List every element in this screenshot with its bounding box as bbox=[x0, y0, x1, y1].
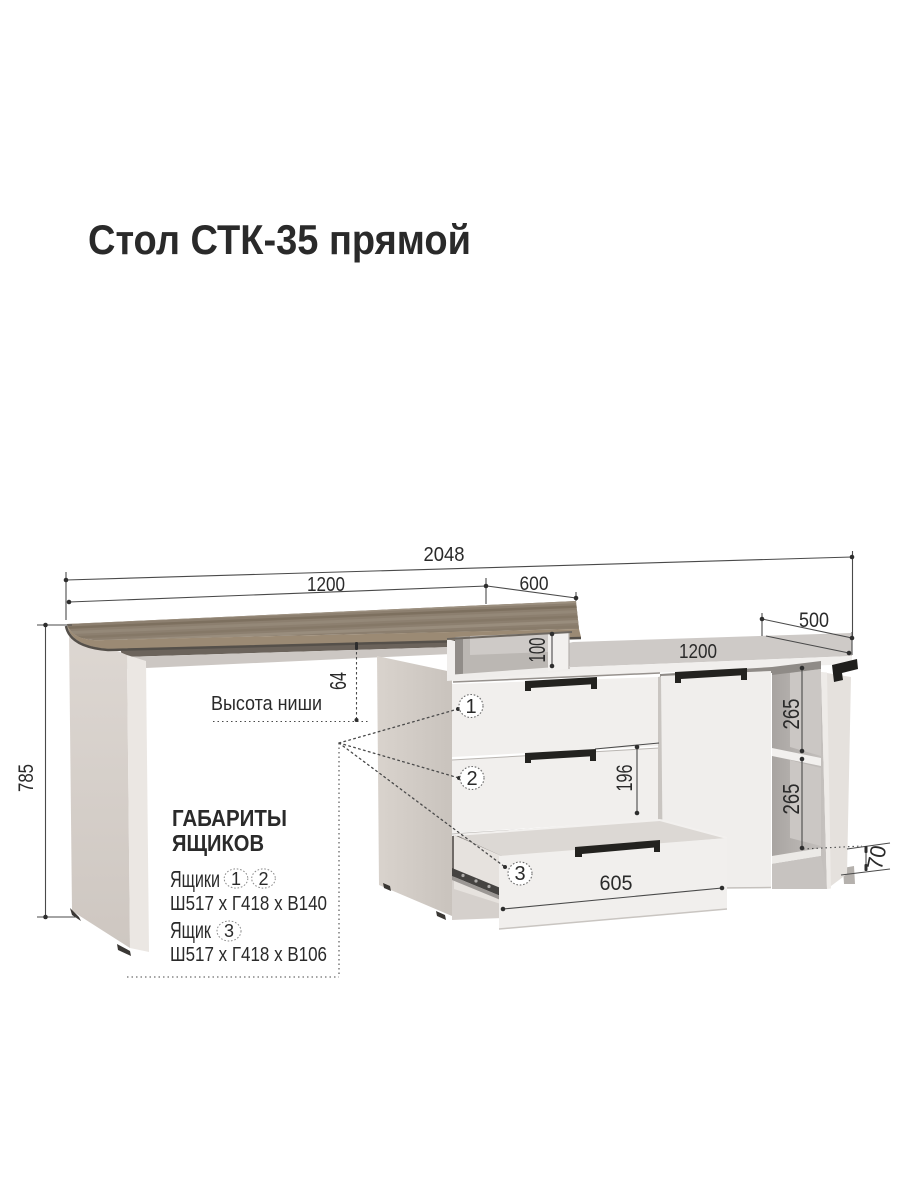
svg-text:605: 605 bbox=[600, 872, 633, 895]
svg-text:64: 64 bbox=[325, 672, 351, 690]
svg-text:100: 100 bbox=[524, 638, 550, 663]
svg-text:500: 500 bbox=[799, 609, 829, 632]
svg-text:Ящик: Ящик bbox=[170, 917, 212, 943]
svg-text:ЯЩИКОВ: ЯЩИКОВ bbox=[172, 830, 264, 856]
svg-text:3: 3 bbox=[514, 863, 525, 885]
svg-text:Ш517 х Г418 х В140: Ш517 х Г418 х В140 bbox=[170, 892, 327, 915]
svg-text:265: 265 bbox=[778, 699, 804, 730]
svg-text:Высота ниши: Высота ниши bbox=[211, 693, 322, 715]
svg-text:785: 785 bbox=[15, 764, 38, 792]
svg-text:Ш517 х Г418 х В106: Ш517 х Г418 х В106 bbox=[170, 943, 327, 966]
svg-text:ГАБАРИТЫ: ГАБАРИТЫ bbox=[172, 805, 287, 831]
svg-text:265: 265 bbox=[778, 784, 804, 815]
svg-text:1200: 1200 bbox=[679, 641, 717, 663]
svg-text:Ящики: Ящики bbox=[170, 866, 220, 892]
svg-text:70: 70 bbox=[862, 843, 891, 872]
svg-text:Стол СТК-35 прямой: Стол СТК-35 прямой bbox=[88, 216, 471, 263]
svg-text:1200: 1200 bbox=[307, 574, 345, 596]
svg-text:1: 1 bbox=[231, 869, 241, 889]
svg-text:196: 196 bbox=[612, 765, 637, 792]
svg-text:2048: 2048 bbox=[424, 544, 465, 566]
svg-text:2: 2 bbox=[258, 869, 268, 889]
svg-text:2: 2 bbox=[466, 768, 477, 790]
svg-text:600: 600 bbox=[520, 574, 549, 595]
svg-text:1: 1 bbox=[465, 696, 476, 718]
svg-text:3: 3 bbox=[224, 921, 234, 941]
